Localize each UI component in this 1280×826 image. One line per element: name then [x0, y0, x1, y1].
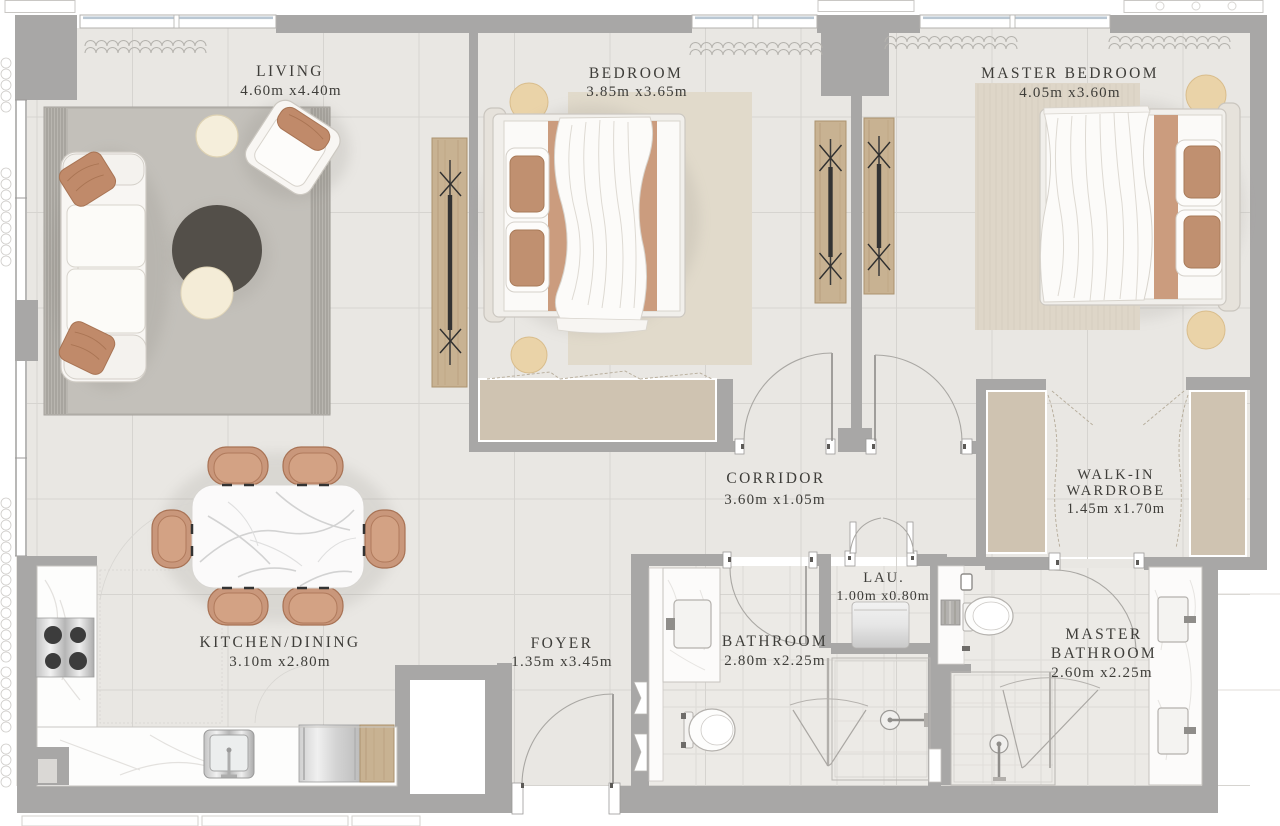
- svg-text:1.35m x3.45m: 1.35m x3.45m: [511, 654, 613, 670]
- svg-text:CORRIDOR: CORRIDOR: [726, 470, 825, 487]
- svg-text:3.85m x3.65m: 3.85m x3.65m: [586, 84, 688, 100]
- svg-text:WALK-IN: WALK-IN: [1077, 467, 1154, 483]
- svg-text:3.60m x1.05m: 3.60m x1.05m: [724, 492, 826, 508]
- svg-text:4.60m x4.40m: 4.60m x4.40m: [240, 83, 342, 99]
- svg-text:2.80m x2.25m: 2.80m x2.25m: [724, 653, 826, 669]
- svg-text:BATHROOM: BATHROOM: [722, 633, 828, 650]
- svg-text:BATHROOM: BATHROOM: [1051, 645, 1157, 662]
- svg-text:MASTER: MASTER: [1065, 626, 1142, 643]
- svg-text:KITCHEN/DINING: KITCHEN/DINING: [199, 634, 360, 651]
- svg-text:LAU.: LAU.: [863, 570, 904, 586]
- svg-text:4.05m x3.60m: 4.05m x3.60m: [1019, 85, 1121, 101]
- svg-text:WARDROBE: WARDROBE: [1067, 483, 1166, 499]
- svg-text:BEDROOM: BEDROOM: [589, 65, 683, 82]
- svg-text:1.00m x0.80m: 1.00m x0.80m: [836, 589, 929, 604]
- svg-text:1.45m x1.70m: 1.45m x1.70m: [1067, 501, 1166, 517]
- svg-text:MASTER BEDROOM: MASTER BEDROOM: [981, 65, 1159, 82]
- svg-text:LIVING: LIVING: [256, 63, 324, 80]
- svg-text:3.10m x2.80m: 3.10m x2.80m: [229, 654, 331, 670]
- svg-text:FOYER: FOYER: [531, 635, 594, 652]
- svg-text:2.60m x2.25m: 2.60m x2.25m: [1051, 665, 1153, 681]
